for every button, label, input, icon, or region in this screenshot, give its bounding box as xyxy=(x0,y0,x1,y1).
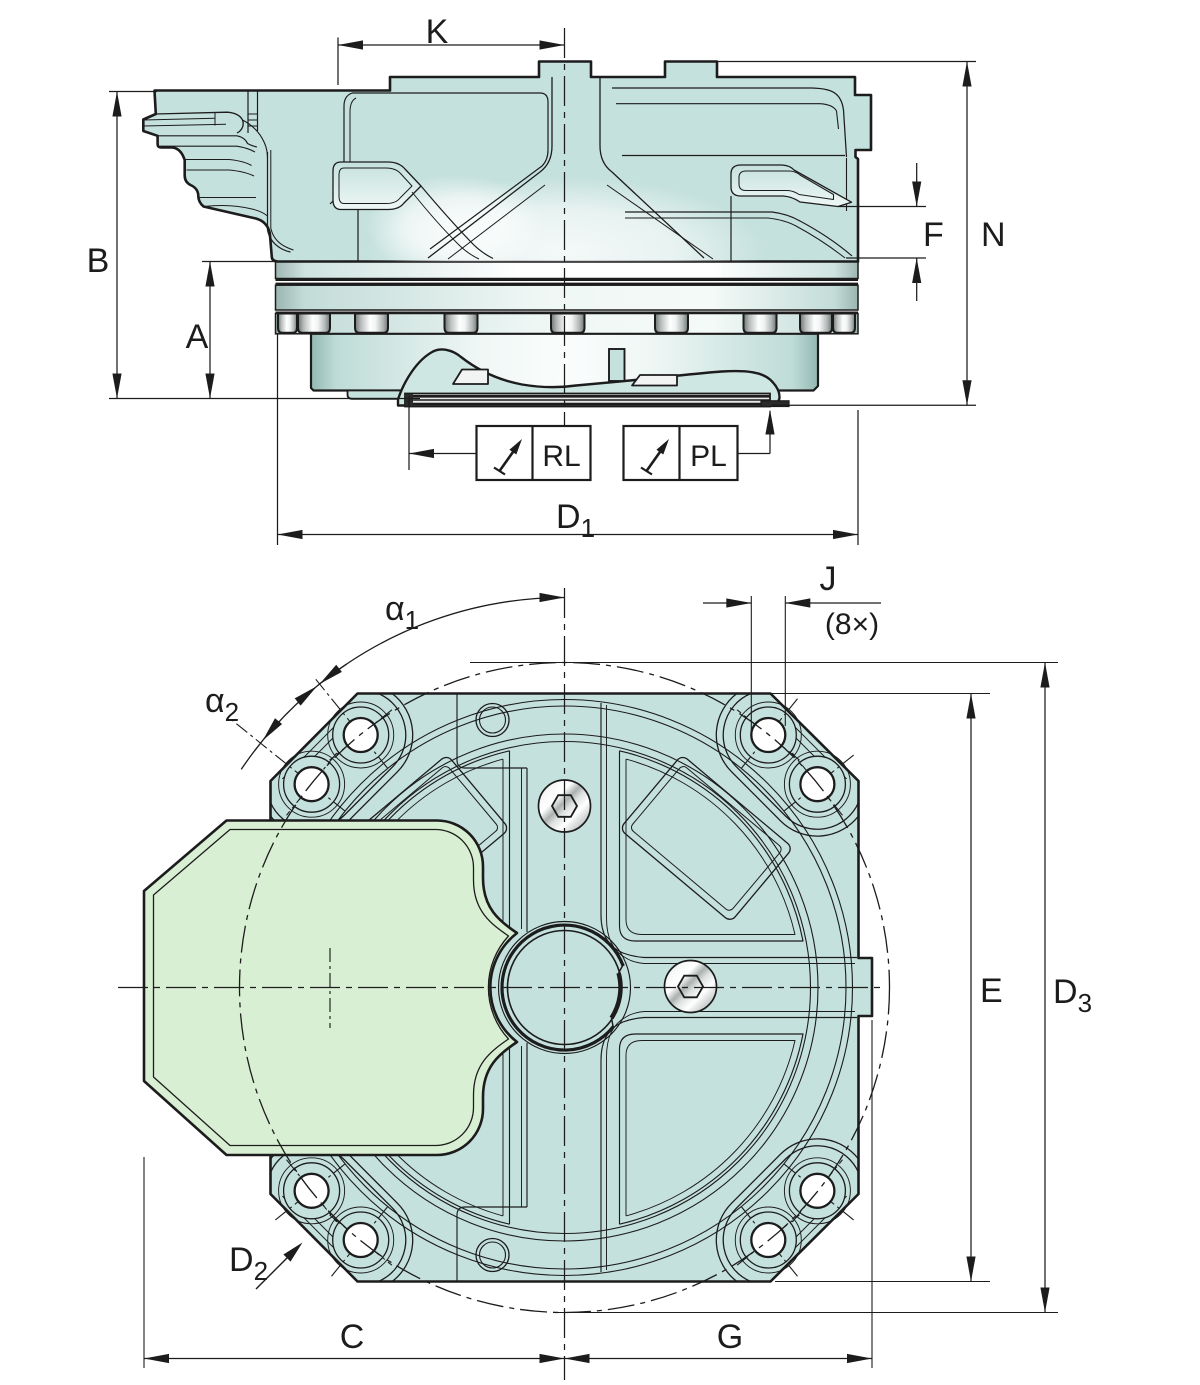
svg-text:N: N xyxy=(981,216,1006,254)
svg-text:J: J xyxy=(820,560,837,598)
svg-text:C: C xyxy=(340,1318,365,1356)
svg-text:B: B xyxy=(87,242,110,280)
svg-text:G: G xyxy=(717,1318,743,1356)
svg-text:A: A xyxy=(186,318,209,356)
svg-text:RL: RL xyxy=(542,440,580,473)
svg-text:F: F xyxy=(923,216,944,254)
svg-text:K: K xyxy=(426,13,449,51)
svg-text:PL: PL xyxy=(690,440,727,473)
svg-text:(8×): (8×) xyxy=(825,608,879,641)
svg-text:E: E xyxy=(980,972,1003,1010)
